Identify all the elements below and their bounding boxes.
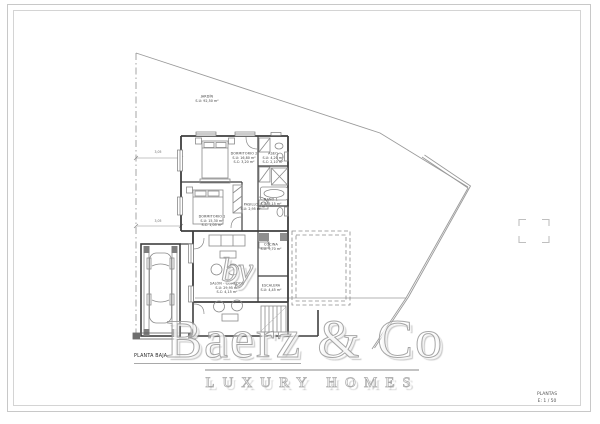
- floor-plan-title: PLANTA BAJA: [134, 353, 167, 358]
- room-label-pasillo: PASILLO S.U: 2,95 m²: [240, 203, 261, 211]
- room-label-escalera: ESCALERA S.U: 4,45 m²: [260, 284, 281, 292]
- room-label-aseo: ASEO S.U: 4,20 m² S.C: 2,10 m²: [262, 152, 283, 165]
- room-area: S.U: 92,50 m²: [195, 99, 218, 103]
- room-label-bano1: BAÑO 1 S.U: 5,15 m²: [260, 198, 281, 206]
- drawing-sheet: JARDÍN S.U: 92,50 m² DORMITORIO 2 S.U: 1…: [0, 0, 600, 424]
- kitchen-appliance: [280, 233, 287, 241]
- room-area: S.U: 2,95 m²: [240, 207, 261, 211]
- window-north-3: [271, 133, 281, 136]
- room-area: S.C: 1,05 m²: [199, 223, 226, 227]
- bed-dormitorio2: [200, 141, 230, 183]
- toilet-bano1: [277, 207, 288, 217]
- nightstand: [229, 138, 235, 144]
- wardrobe-aseo: [259, 138, 270, 152]
- room-label-cocina: COCINA S.U: 9,70 m²: [260, 243, 281, 251]
- room-label-dormitorio2: DORMITORIO 2 S.U: 16,80 m² S.C: 3,20 m²: [231, 152, 258, 165]
- sink-aseo: [275, 143, 283, 149]
- dimension-label-upper: 3,05: [154, 150, 161, 154]
- sheet-name: PLANTAS: [537, 391, 557, 398]
- room-area: S.C: 2,10 m²: [262, 160, 283, 164]
- watermark-by: by: [221, 252, 253, 290]
- room-label-dormitorio1: DORMITORIO 1 S.U: 15,30 m² S.C: 1,05 m²: [199, 215, 226, 228]
- upper-floor-projection: [292, 231, 350, 305]
- watermark-brand: Baerz & Co: [166, 308, 444, 370]
- room-area: S.C: 3,20 m²: [231, 160, 258, 164]
- watermark-rule: [205, 369, 419, 371]
- room-label-jardin: JARDÍN S.U: 92,50 m²: [195, 95, 218, 103]
- nightstand: [187, 187, 193, 193]
- house-walls: [141, 136, 318, 336]
- shower: [272, 168, 288, 185]
- dimension-lines: [134, 156, 183, 228]
- dimension-label-lower: 3,05: [154, 219, 161, 223]
- watermark-tagline: LUXURY HOMES: [205, 375, 418, 392]
- room-area: S.U: 5,15 m²: [260, 202, 281, 206]
- nightstand: [196, 138, 202, 144]
- corner-bracket-marks: [519, 220, 549, 243]
- room-area: S.U: 9,70 m²: [260, 247, 281, 251]
- sheet-scale: E: 1 / 50: [537, 398, 557, 405]
- sofa: [209, 235, 245, 246]
- kitchen-counter: [259, 233, 269, 241]
- room-area: S.U: 4,45 m²: [260, 288, 281, 292]
- wardrobe-bano: [259, 167, 270, 182]
- floor-title-underline: [134, 363, 301, 364]
- sheet-name-and-scale: PLANTAS E: 1 / 50: [537, 391, 557, 405]
- room-area: S.C: 4,15 m²: [210, 290, 244, 294]
